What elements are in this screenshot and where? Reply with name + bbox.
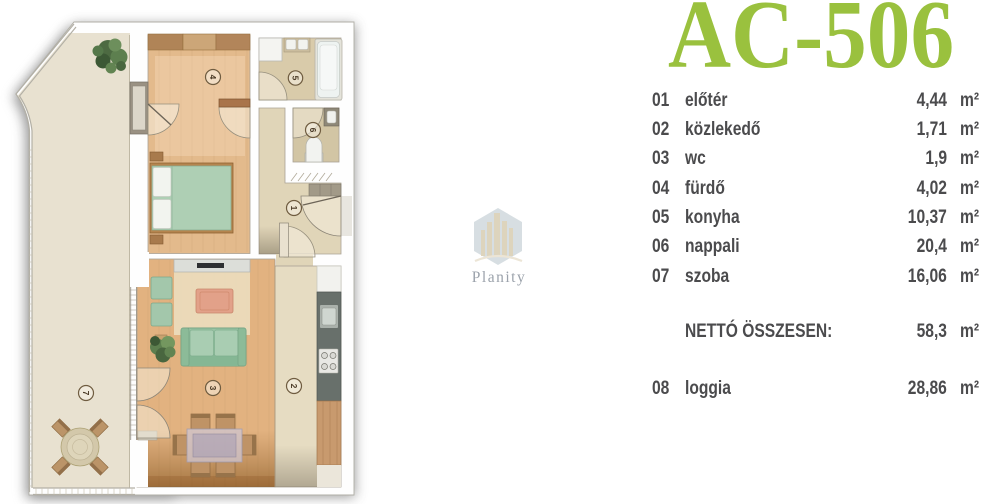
svg-text:Planity: Planity	[472, 269, 526, 286]
